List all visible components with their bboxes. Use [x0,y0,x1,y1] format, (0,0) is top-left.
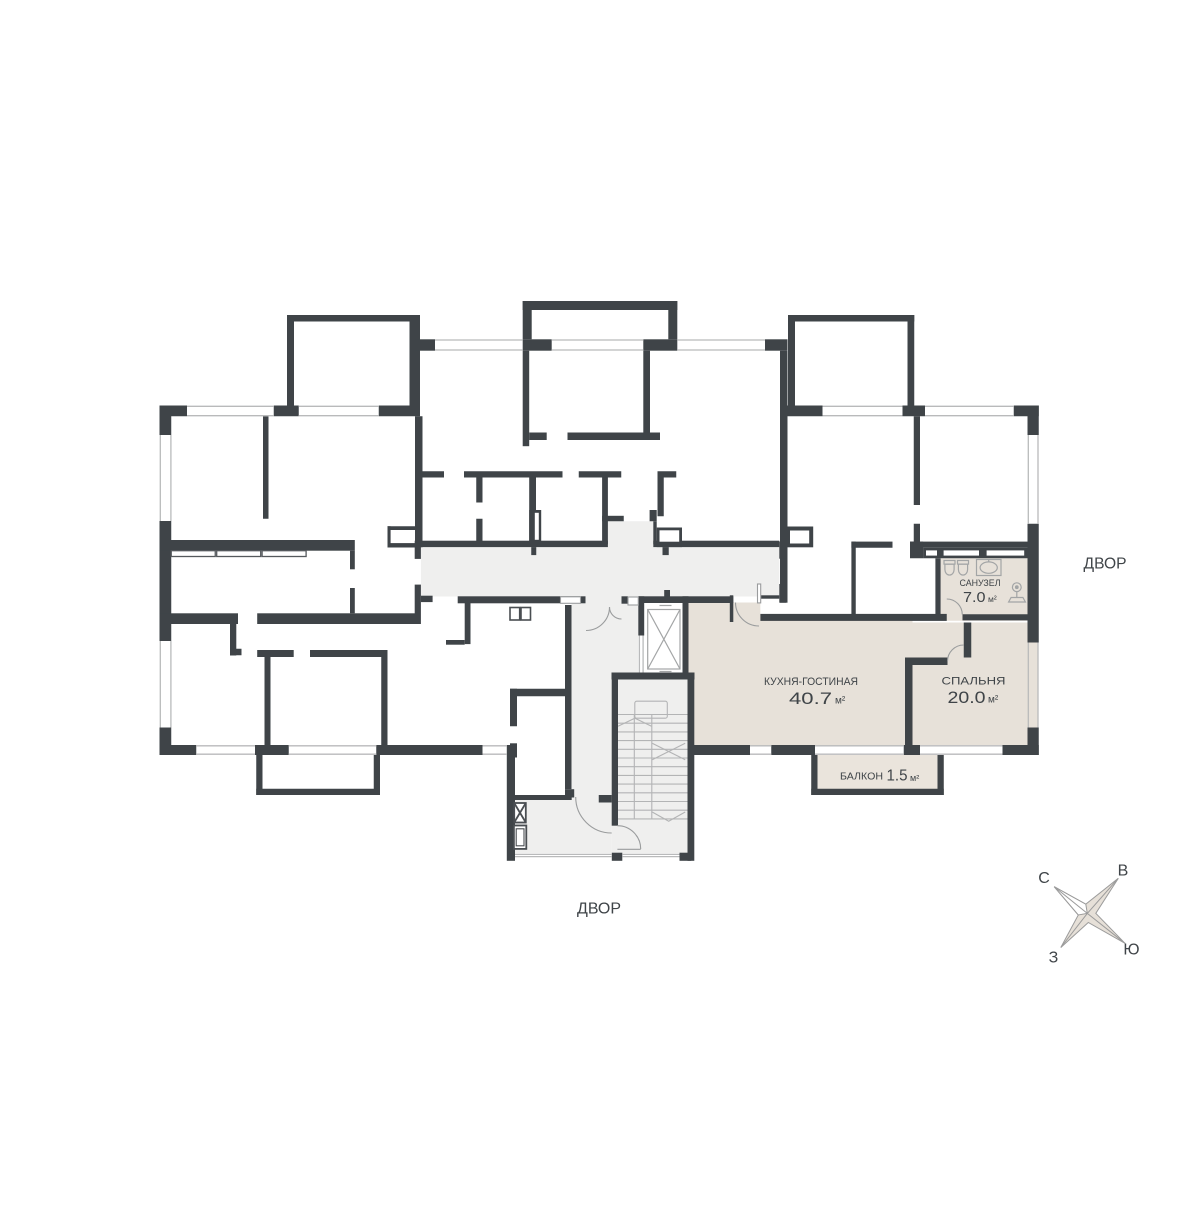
svg-text:м²: м² [910,773,919,783]
svg-text:ДВОР: ДВОР [1084,556,1127,573]
svg-text:40.7: 40.7 [789,690,832,708]
svg-text:м²: м² [988,695,999,706]
svg-text:СПАЛЬНЯ: СПАЛЬНЯ [942,675,1006,687]
svg-text:С: С [1038,870,1050,887]
svg-text:КУХНЯ-ГОСТИНАЯ: КУХНЯ-ГОСТИНАЯ [764,676,858,688]
svg-text:З: З [1049,950,1059,967]
svg-text:БАЛКОН: БАЛКОН [840,771,883,783]
svg-text:20.0: 20.0 [948,689,986,707]
svg-text:м²: м² [988,594,997,604]
svg-text:В: В [1118,863,1129,880]
svg-text:7.0: 7.0 [963,589,986,606]
svg-text:1.5: 1.5 [887,768,908,785]
svg-text:м²: м² [835,696,846,707]
svg-text:ДВОР: ДВОР [577,901,621,918]
svg-text:САНУЗЕЛ: САНУЗЕЛ [960,578,1001,589]
svg-text:Ю: Ю [1123,942,1139,959]
